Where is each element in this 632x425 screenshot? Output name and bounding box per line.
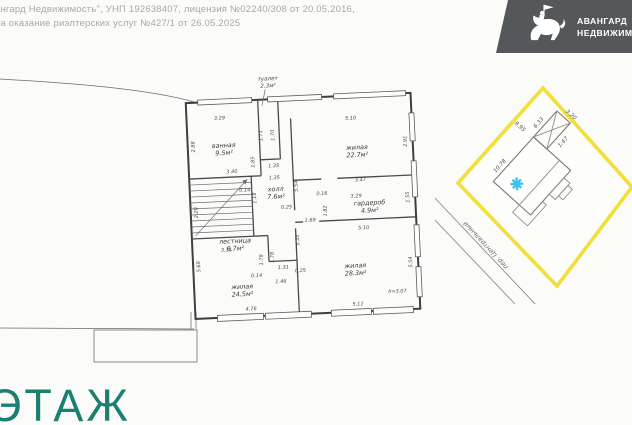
dimension-label: 5.54 (408, 256, 414, 267)
dimension-label: 1.18 (252, 192, 258, 203)
dimension-label: 5.54 (293, 180, 299, 191)
dimension-label: 1.55 (405, 191, 411, 202)
floor-title: ЭТАЖ (0, 380, 131, 425)
dimension-label: 0.25 (281, 204, 292, 210)
dimension-label: 0.25 (295, 268, 306, 274)
dimension-label: 0.16 (316, 191, 327, 197)
dimension-label: 3.29 (350, 193, 361, 199)
dimension-label: 3.47 (355, 177, 367, 184)
dimension-label: 2.88 (190, 141, 196, 152)
lot-boundary (458, 88, 632, 286)
dimension-label: 1.82 (323, 205, 329, 216)
dimension-label: 1.78 (270, 252, 276, 263)
dimension-label: 5.10 (358, 225, 369, 231)
dimension-label: 3.29 (214, 115, 225, 121)
room-labels: ванная9.5м²жилая22.7м²холл7.6м²гардероб4… (212, 134, 390, 299)
room-label: холл7.6м² (267, 185, 286, 201)
dimension-label: 5.10 (345, 115, 356, 121)
room-label: ванная9.5м² (212, 141, 237, 158)
dimension-label: 2.91 (402, 135, 408, 146)
dimension-label: 1.69 (304, 217, 315, 223)
dimension-labels: 3.295.101.711.702.881.853.401.351.352.91… (189, 107, 416, 315)
dimension-label: 1.70 (270, 129, 276, 140)
dimension-label: 1.85 (250, 156, 256, 167)
dimension-label: 4.76 (245, 306, 256, 312)
dimension-label: 5.11 (352, 301, 363, 307)
dimension-label: 2.20 (193, 207, 199, 218)
room-label: жилая22.7м² (345, 143, 369, 160)
dimension-label: 3.31 (221, 247, 232, 253)
dimension-label: 1.35 (268, 163, 279, 169)
screenshot-canvas: ангард Недвижимость", УНП 192638407, лиц… (0, 0, 632, 425)
dimension-label: 0.14 (251, 273, 262, 279)
dimension-label: h=3.07 (388, 288, 408, 295)
room-label: жилая24.5м² (230, 282, 254, 299)
toilet-name: туалет (257, 76, 278, 83)
floor-plan: туалет 2.3м² ванная9.5м²жилая22.7м²холл7… (170, 56, 432, 332)
site-plan: пер. Центральный 10.788.956.333.201.47 (435, 66, 632, 304)
dimension-label: 1.46 (275, 279, 286, 285)
dimension-label: 3.40 (226, 169, 237, 175)
dimension-label: 5.35 (295, 234, 301, 245)
room-label: жилая28.3м² (343, 261, 367, 278)
dimension-label: 5.69 (196, 261, 202, 272)
dimension-label: 1.71 (258, 130, 264, 141)
dimension-label: 1.31 (278, 265, 289, 271)
room-label: гардероб4.9м² (353, 198, 385, 215)
dimension-label: 1.35 (269, 175, 280, 181)
toilet-area: 2.3м² (260, 82, 276, 90)
dimension-label: 0.14 (239, 187, 250, 193)
dimension-label: 1.79 (259, 254, 265, 265)
